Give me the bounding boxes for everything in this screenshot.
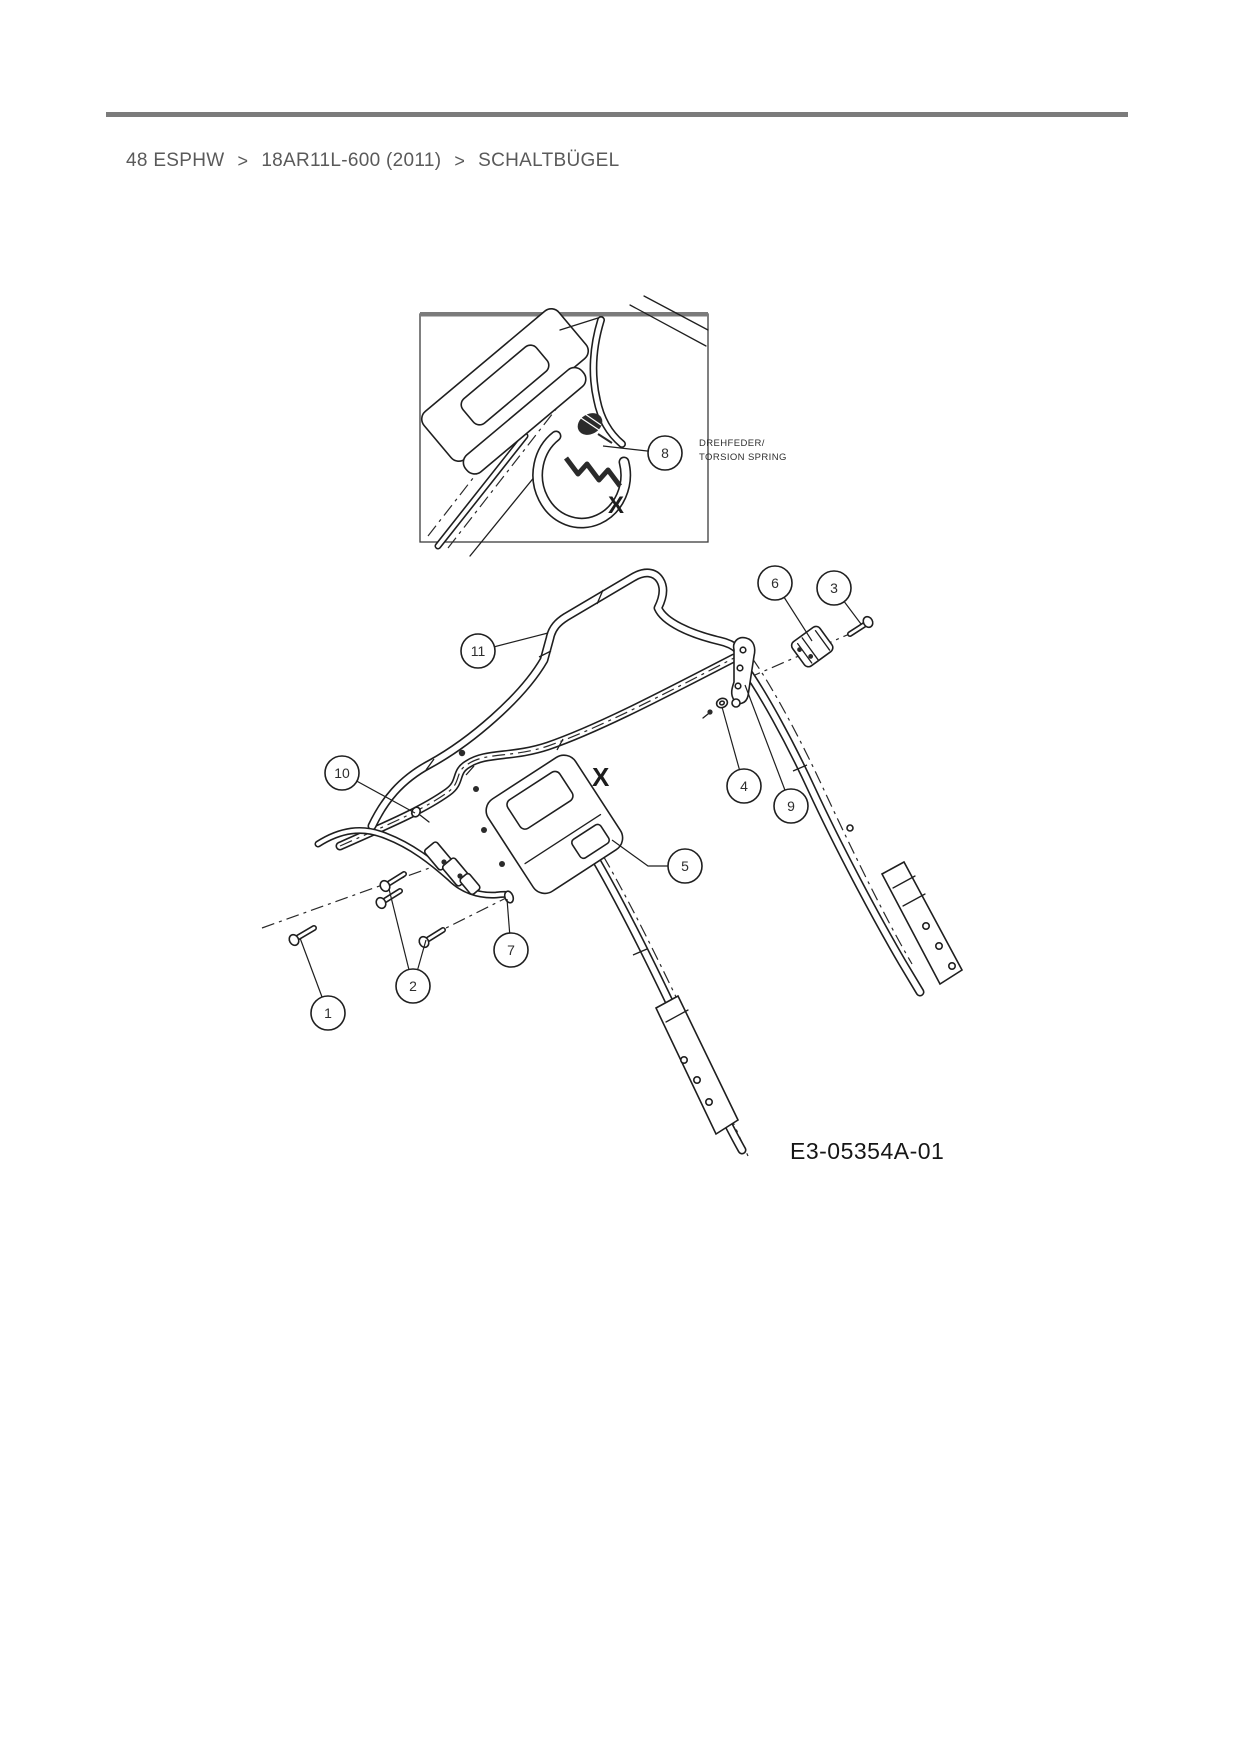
callout-number: 9 (787, 798, 795, 814)
screw (287, 928, 314, 947)
callout-number: 6 (771, 575, 779, 591)
inset-label-line2: TORSION SPRING (699, 451, 787, 465)
callout-4: 4 (722, 707, 761, 803)
callout-number: 2 (409, 978, 417, 994)
right-lower-handle (745, 658, 962, 992)
handle-end-plate (656, 996, 738, 1134)
callout-number: 11 (471, 643, 486, 659)
callout-2: 2 (389, 889, 430, 1003)
left-lower-handle (570, 812, 748, 1156)
callout-6: 6 (758, 566, 812, 641)
main-x-mark: X (592, 762, 609, 793)
callout-1: 1 (300, 938, 345, 1030)
callout-number: 7 (507, 942, 515, 958)
screw (417, 930, 443, 949)
callout-number: 8 (661, 445, 669, 461)
axis-line (262, 860, 452, 928)
screw (850, 615, 875, 634)
callout-7: 7 (494, 899, 528, 967)
cable-clamp (790, 624, 835, 668)
inset-label-line1: DREHFEDER/ (699, 437, 787, 451)
part-code: E3-05354A-01 (790, 1138, 944, 1165)
callout-3: 3 (817, 571, 861, 624)
torsion-spring-drawing (418, 296, 708, 556)
callout-number: 1 (324, 1005, 332, 1021)
callout-number: 4 (740, 778, 748, 794)
inset-label: DREHFEDER/ TORSION SPRING (699, 437, 787, 465)
catalog-page: 48 ESPHW > 18AR11L-600 (2011) > SCHALTBÜ… (0, 0, 1240, 1754)
callout-11: 11 (461, 633, 548, 668)
mount-bracket (732, 638, 755, 707)
washer (703, 697, 729, 718)
main-diagram: 1234567891011 (262, 436, 962, 1156)
screw (374, 891, 400, 910)
callout-number: 5 (681, 858, 689, 874)
callout-number: 3 (830, 580, 838, 596)
inset-x-mark: X (608, 492, 624, 520)
parts-diagram-svg: 1234567891011 (0, 0, 1240, 1754)
callout-5: 5 (612, 840, 702, 883)
inset-top-rule (420, 312, 708, 317)
inset-box (418, 296, 708, 556)
rod-hook-end (503, 890, 515, 904)
callout-number: 10 (334, 765, 350, 781)
